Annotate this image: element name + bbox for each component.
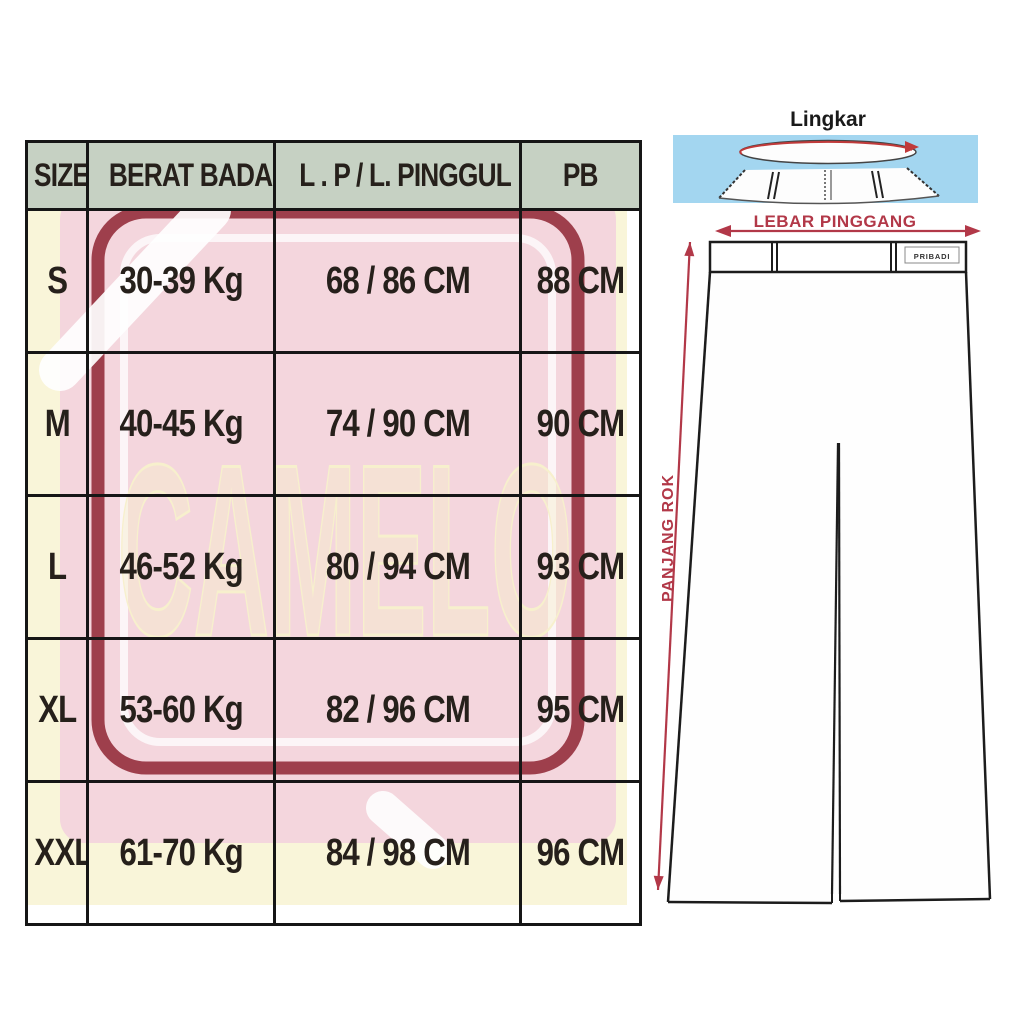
table-row: XXL 61-70 Kg 84 / 98 CM 96 CM [27, 782, 641, 925]
cell-weight: 40-45 Kg [88, 353, 275, 496]
header-size: SIZE [27, 142, 88, 210]
skirt-hem-left [668, 902, 832, 903]
header-berat-badan: BERAT BADAN [88, 142, 275, 210]
table-row: L 46-52 Kg 80 / 94 CM 93 CM [27, 496, 641, 639]
cell-waist-hip: 80 / 94 CM [275, 496, 521, 639]
waist-circumference-illustration [673, 135, 978, 204]
table-row: XL 53-60 Kg 82 / 96 CM 95 CM [27, 639, 641, 782]
waistband-3d-fill [719, 168, 939, 204]
skirt-outline [668, 272, 990, 903]
cell-length: 93 CM [521, 496, 641, 639]
size-chart-table: CAMELO SIZE BERAT BADAN L . P / L. PINGG… [25, 140, 627, 905]
cell-waist-hip: 84 / 98 CM [275, 782, 521, 925]
center-slit-right [839, 443, 840, 894]
diagram-title: Lingkar [790, 108, 866, 131]
table-row: M 40-45 Kg 74 / 90 CM 90 CM [27, 353, 641, 496]
cell-length: 88 CM [521, 210, 641, 353]
skirt-waistband: PRIBADI [710, 242, 966, 272]
cell-waist-hip: 82 / 96 CM [275, 639, 521, 782]
cell-length: 96 CM [521, 782, 641, 925]
brand-tag-label: PRIBADI [914, 252, 950, 261]
cell-weight: 30-39 Kg [88, 210, 275, 353]
cell-length: 95 CM [521, 639, 641, 782]
table-row: S 30-39 Kg 68 / 86 CM 88 CM [27, 210, 641, 353]
cell-weight: 53-60 Kg [88, 639, 275, 782]
waist-width-label: LEBAR PINGGANG [754, 212, 917, 231]
cell-waist-hip: 68 / 86 CM [275, 210, 521, 353]
table-header-row: SIZE BERAT BADAN L . P / L. PINGGUL PB [27, 142, 641, 210]
skirt-length-label: PANJANG ROK [660, 474, 677, 602]
skirt-fill [668, 272, 990, 902]
header-lp-pinggul: L . P / L. PINGGUL [275, 142, 521, 210]
cell-size: L [27, 496, 88, 639]
cell-size: XL [27, 639, 88, 782]
cell-weight: 46-52 Kg [88, 496, 275, 639]
header-pb: PB [521, 142, 641, 210]
skirt-measurement-diagram: Lingkar LEBAR PINGGANG PANJANG ROK [635, 90, 1015, 950]
size-chart-grid: SIZE BERAT BADAN L . P / L. PINGGUL PB S… [25, 140, 642, 926]
cell-length: 90 CM [521, 353, 641, 496]
cell-size: XXL [27, 782, 88, 925]
cell-weight: 61-70 Kg [88, 782, 275, 925]
cell-waist-hip: 74 / 90 CM [275, 353, 521, 496]
cell-size: S [27, 210, 88, 353]
cell-size: M [27, 353, 88, 496]
